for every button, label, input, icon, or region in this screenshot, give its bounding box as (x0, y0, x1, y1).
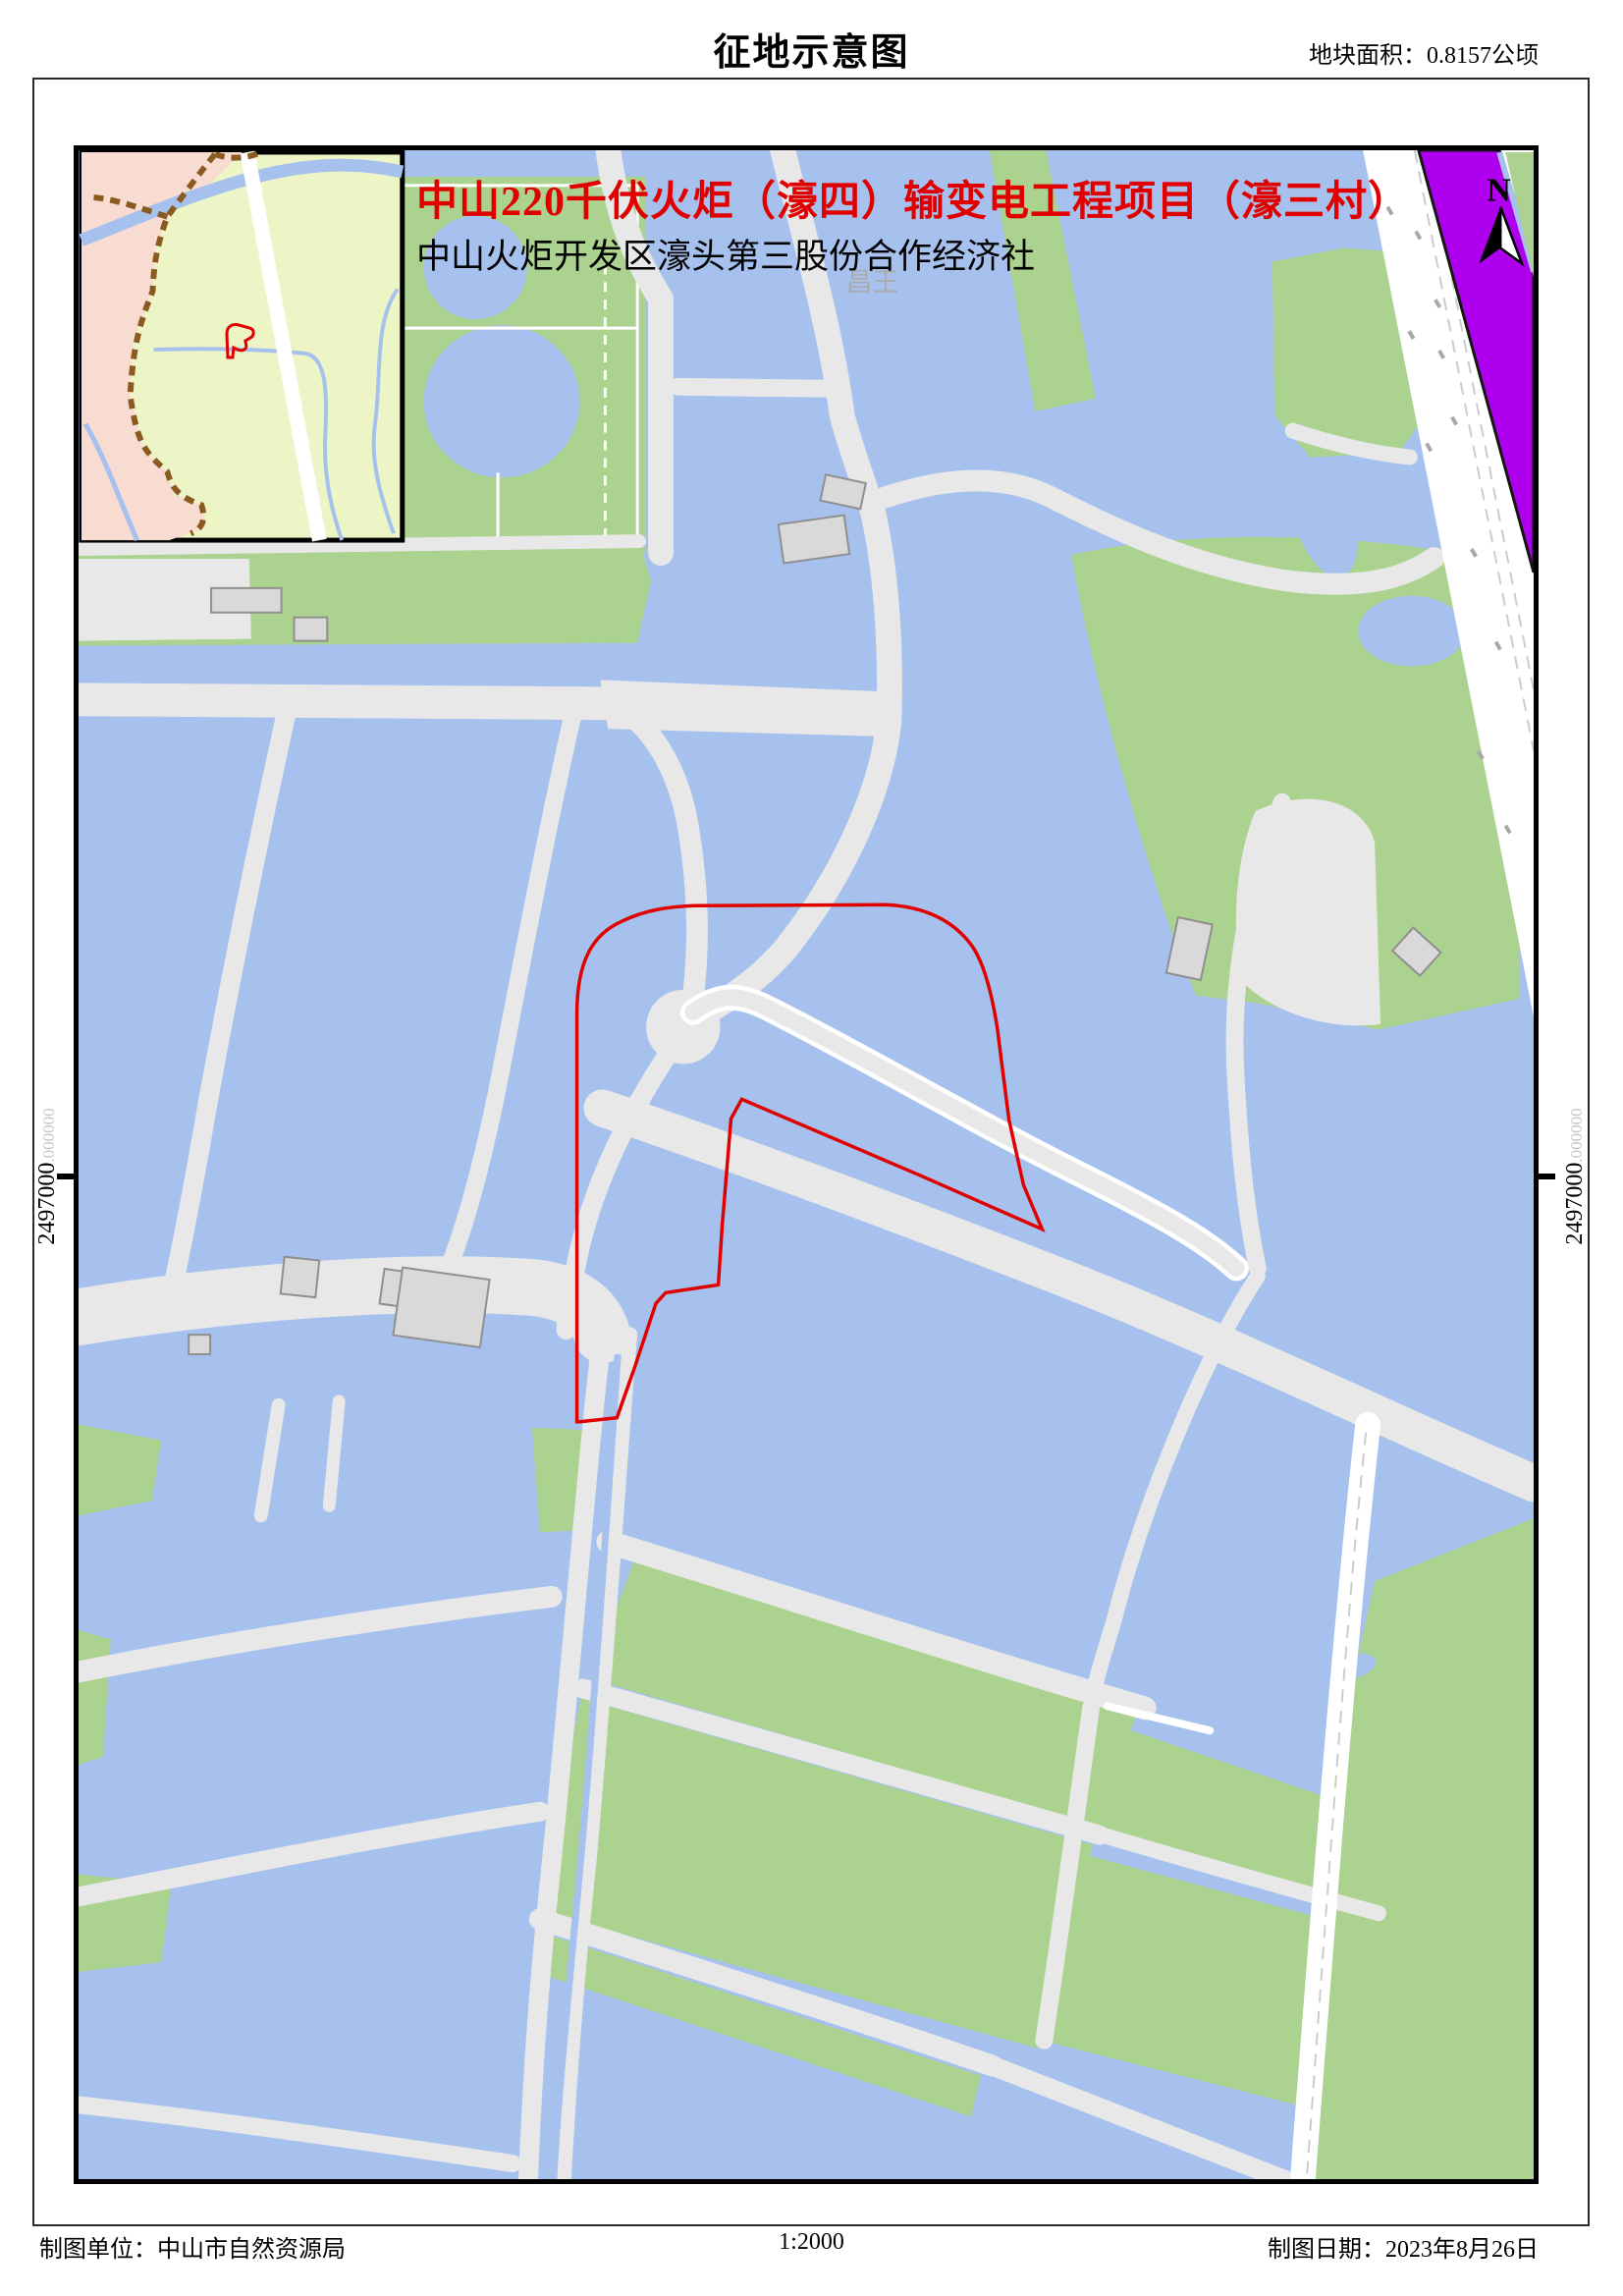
parcel-area-label: 地块面积：0.8157公顷 (1309, 35, 1539, 70)
coordinate-value: 2497000 (1562, 1163, 1588, 1245)
coordinate-value: 2497000 (34, 1163, 60, 1245)
land-acquisition-sheet: { "doc": { "title": "征地示意图", "area_label… (0, 0, 1623, 2296)
grid-tick-right (1536, 1174, 1555, 1179)
grid-coordinate-left: 2497000.000000 (34, 1066, 60, 1287)
coordinate-decimal: .000000 (1567, 1108, 1586, 1162)
map-image: 昌王 N (79, 150, 1534, 2179)
inset-locator-map (81, 152, 403, 540)
sports-field-pond-oval (424, 325, 580, 477)
grid-coordinate-right: 2497000.000000 (1562, 1066, 1588, 1287)
coordinate-decimal: .000000 (39, 1108, 58, 1162)
project-title: 中山220千伏火炬（濠四）输变电工程项目（濠三村） (416, 168, 1410, 228)
north-label: N (1487, 173, 1510, 209)
map-canvas: 昌王 N 中山220千伏火炬（濠四）输变电工程项目（濠三村） (74, 145, 1539, 2184)
footer-date: 制图日期：2023年8月26日 (1268, 2229, 1539, 2264)
project-subtitle: 中山火炬开发区濠头第三股份合作经济社 (416, 229, 1035, 279)
